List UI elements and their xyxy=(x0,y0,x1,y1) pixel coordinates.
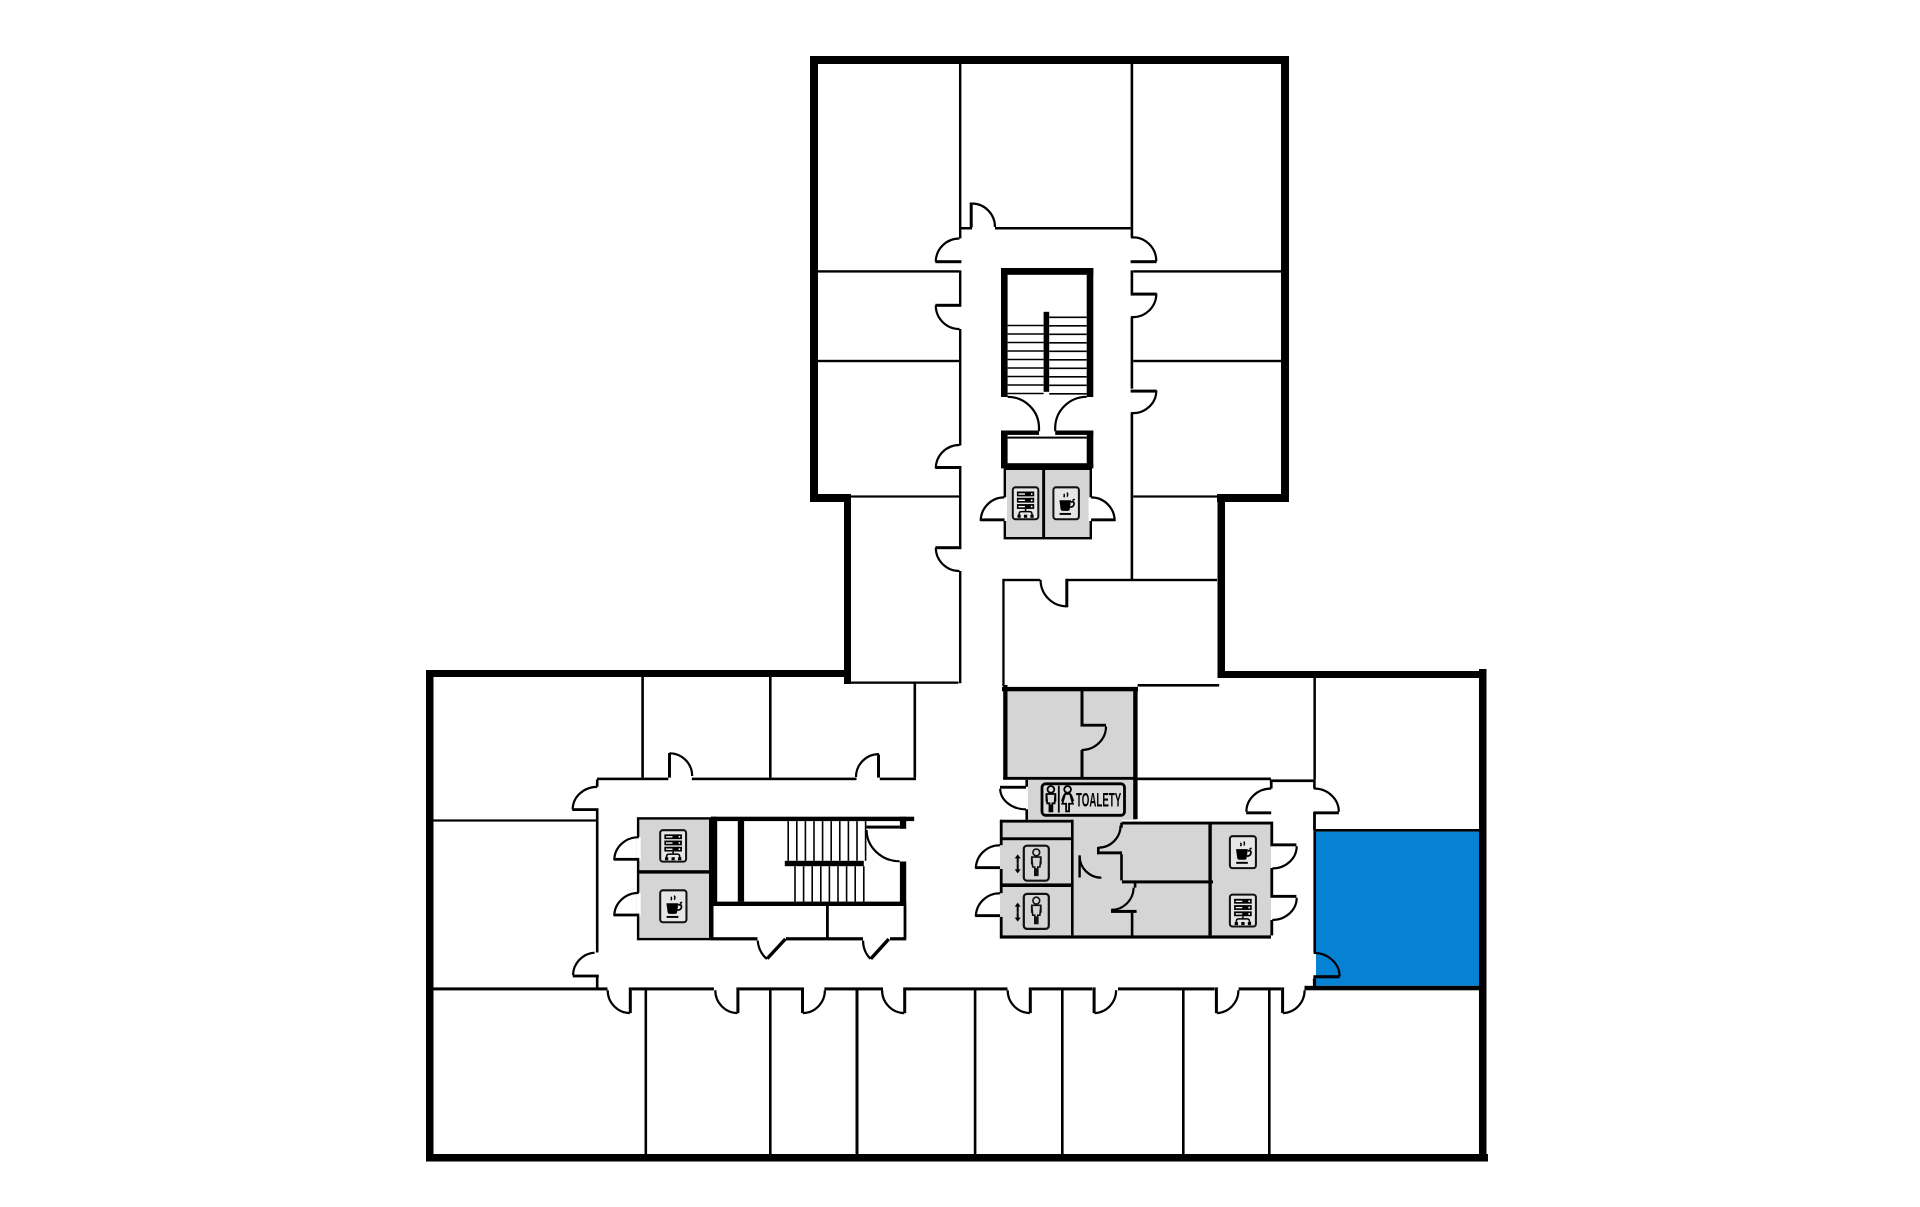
svg-text:TOALETY: TOALETY xyxy=(1076,789,1121,811)
